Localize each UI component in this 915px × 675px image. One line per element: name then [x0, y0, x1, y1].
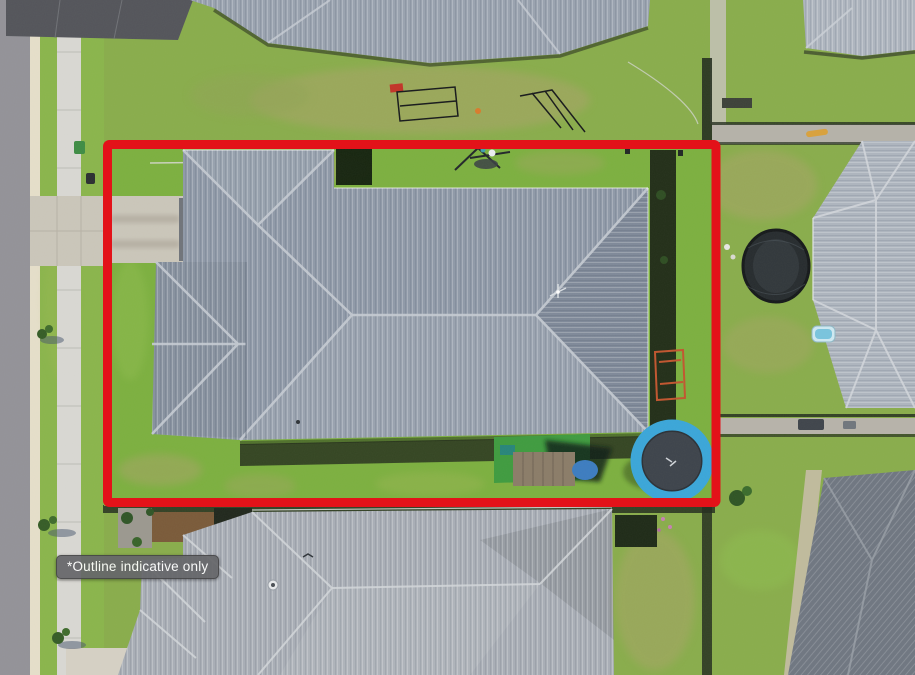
aerial-photo-stage: *Outline indicative only — [0, 0, 915, 675]
outline-disclaimer-label: *Outline indicative only — [56, 555, 219, 579]
